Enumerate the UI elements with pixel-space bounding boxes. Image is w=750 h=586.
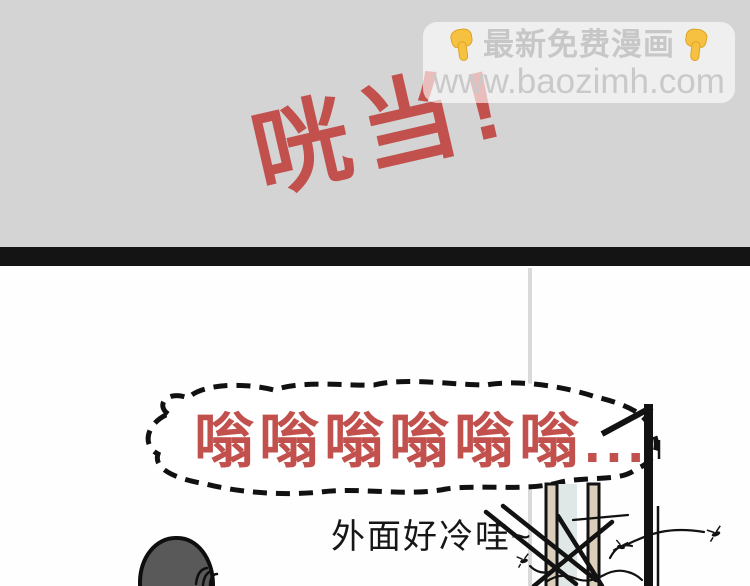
- paw-lines-icon: [0, 266, 750, 586]
- watermark-title: 最新免费漫画: [483, 29, 675, 60]
- comic-panel-bottom: 嗡嗡嗡嗡嗡嗡...: [0, 266, 750, 586]
- comic-page: 咣当! 最新免费漫画 www.baozimh.com: [0, 0, 750, 586]
- watermark-url: www.baozimh.com: [433, 64, 725, 99]
- point-down-icon-left: [445, 25, 480, 65]
- panel-divider: [0, 247, 750, 266]
- point-down-icon-right: [679, 25, 713, 64]
- watermark-title-row: 最新免费漫画: [447, 27, 711, 63]
- watermark-badge: 最新免费漫画 www.baozimh.com: [423, 22, 735, 103]
- comic-panel-top: 咣当! 最新免费漫画 www.baozimh.com: [0, 0, 750, 247]
